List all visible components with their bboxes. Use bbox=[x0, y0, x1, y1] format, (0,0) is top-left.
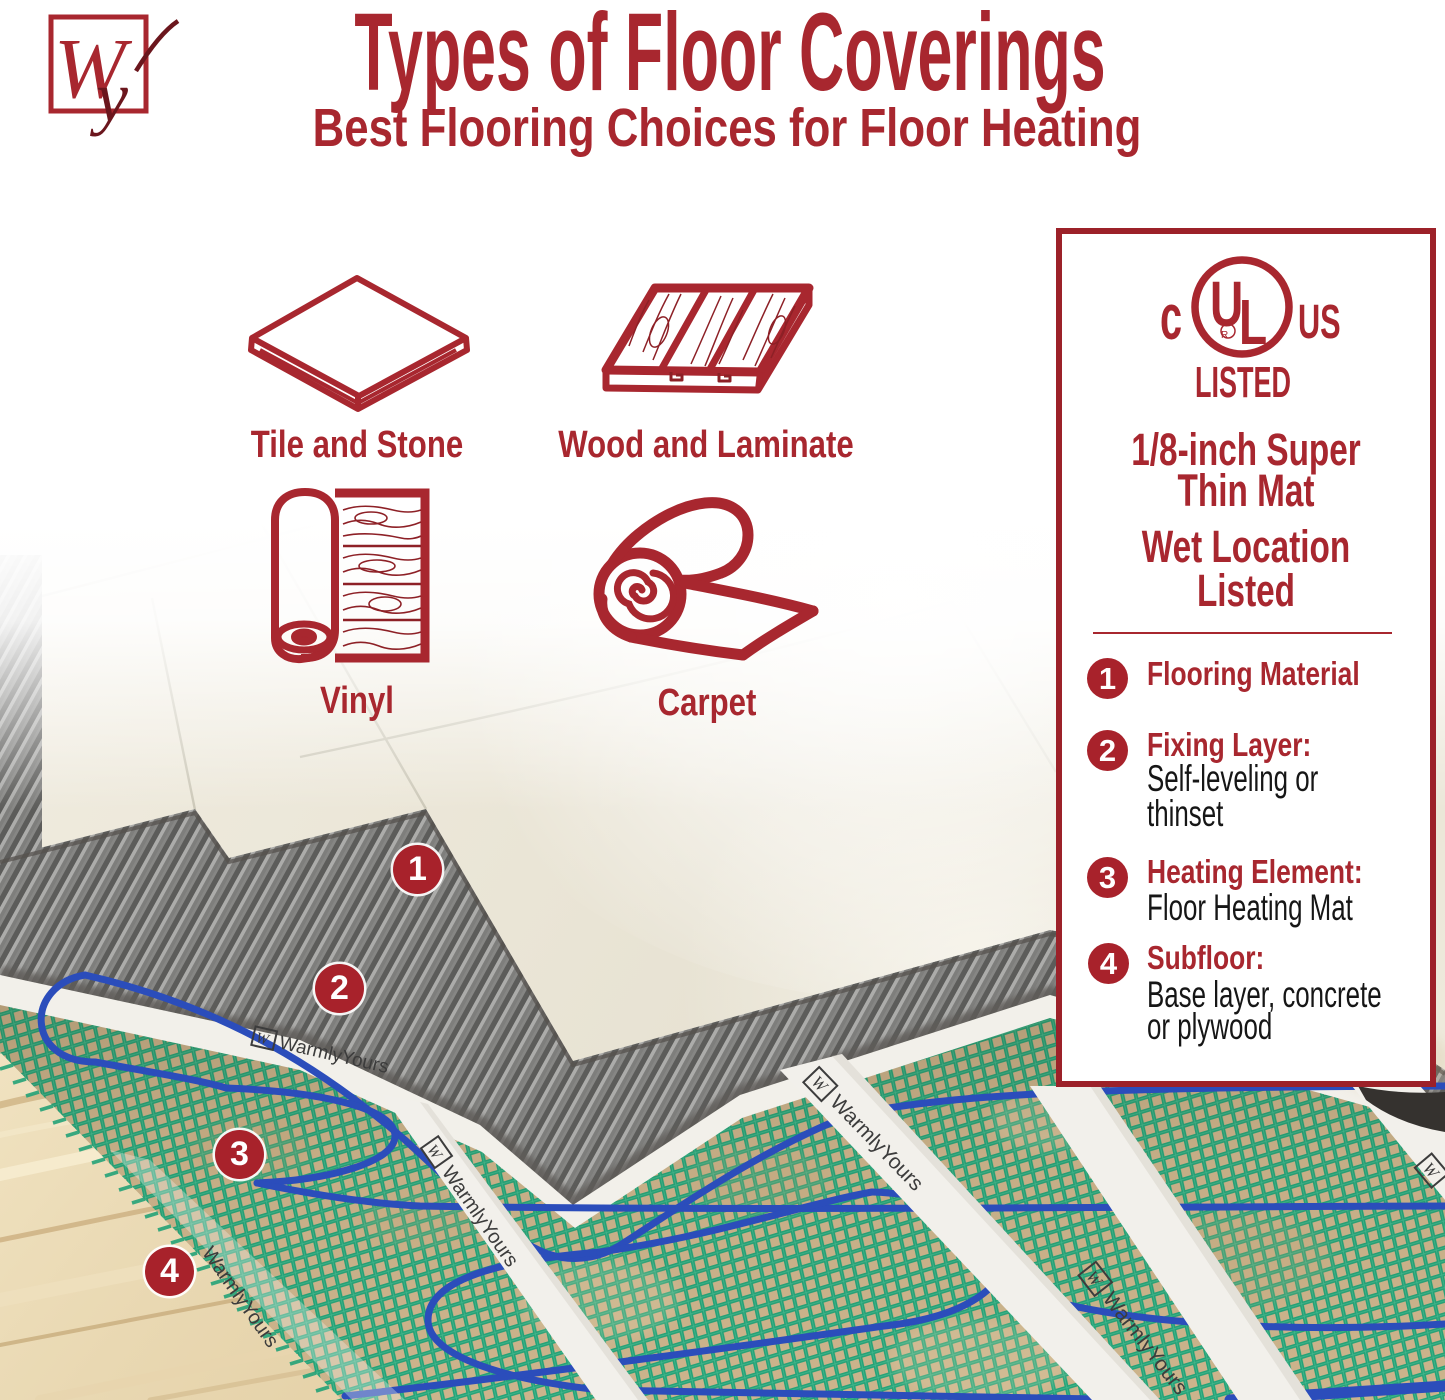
svg-text:R: R bbox=[1221, 330, 1228, 341]
svg-text:US: US bbox=[1298, 295, 1341, 349]
svg-text:LISTED: LISTED bbox=[1195, 358, 1291, 407]
svg-text:L: L bbox=[1239, 287, 1267, 358]
svg-text:c: c bbox=[1160, 283, 1182, 354]
